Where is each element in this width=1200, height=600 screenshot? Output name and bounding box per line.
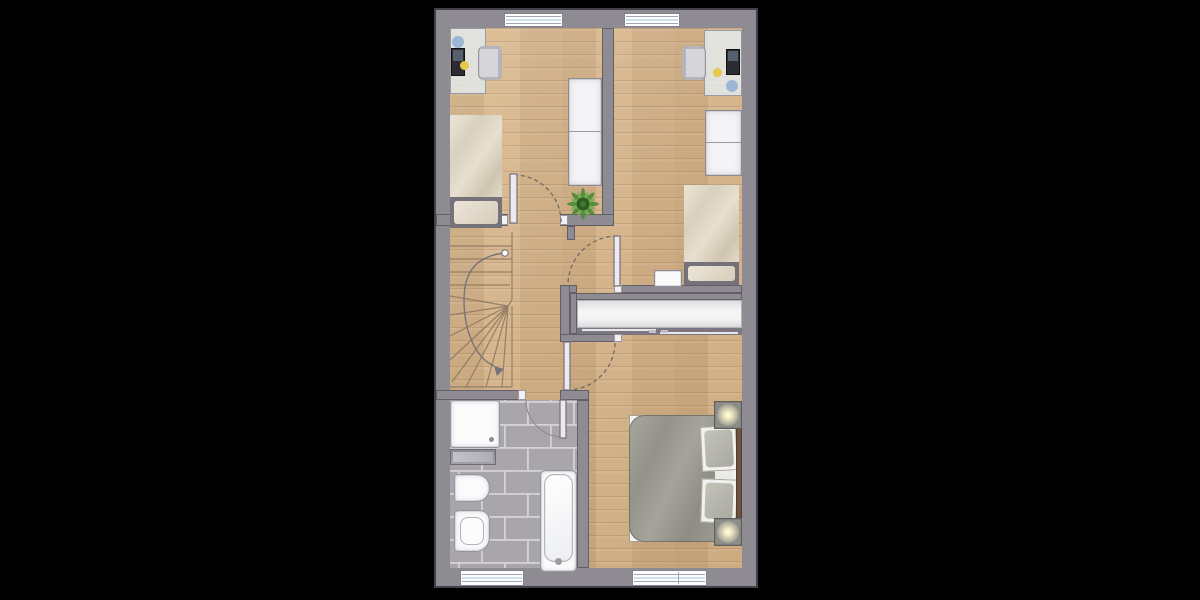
door-leaf-bedroom-left <box>510 174 517 223</box>
door-leaf-bathroom <box>560 400 566 438</box>
floor-plan-canvas <box>0 0 1200 600</box>
door-arc-master <box>567 342 615 390</box>
door-leaf-master <box>564 342 570 390</box>
door-arc-bathroom <box>526 400 563 437</box>
doors-layer <box>436 10 760 590</box>
floor-plan <box>434 8 758 588</box>
door-arc-bedroom-right <box>568 236 617 285</box>
door-arc-bedroom-left <box>514 175 561 222</box>
door-leaf-bedroom-right <box>614 236 620 286</box>
